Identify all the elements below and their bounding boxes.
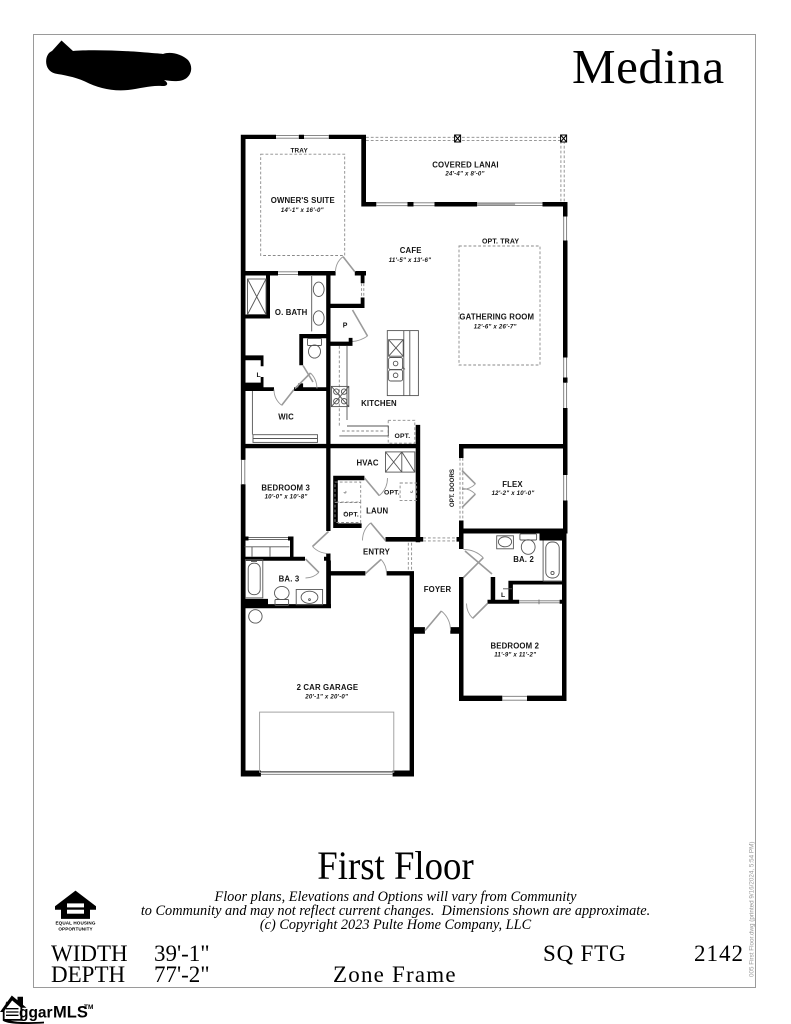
svg-text:FLEX: FLEX (502, 480, 523, 489)
svg-text:11'-9" x 11'-2": 11'-9" x 11'-2" (494, 651, 536, 658)
svg-text:12'-6" x 26'-7": 12'-6" x 26'-7" (474, 323, 517, 330)
svg-text:OPT. DOORS: OPT. DOORS (449, 469, 456, 507)
svg-text:OPT.: OPT. (384, 490, 400, 497)
svg-text:ggar: ggar (19, 1005, 53, 1022)
svg-text:005 First Floor.dwg (printed 9: 005 First Floor.dwg (printed 9/16/2024, … (749, 842, 756, 977)
svg-text:GATHERING ROOM: GATHERING ROOM (459, 313, 534, 322)
svg-text:OPT.: OPT. (343, 512, 359, 519)
svg-text:OPPORTUNITY: OPPORTUNITY (58, 927, 92, 932)
svg-text:BEDROOM 2: BEDROOM 2 (491, 641, 540, 650)
svg-text:11'-5" x 13'-6": 11'-5" x 13'-6" (389, 257, 431, 264)
svg-text:WIC: WIC (278, 413, 294, 422)
svg-text:20'-1" x 20'-0": 20'-1" x 20'-0" (304, 694, 348, 701)
svg-text:BEDROOM 3: BEDROOM 3 (261, 484, 310, 493)
svg-text:FOYER: FOYER (424, 585, 452, 594)
svg-text:MLS: MLS (53, 1004, 88, 1022)
svg-text:BA. 2: BA. 2 (513, 555, 534, 564)
svg-text:TM: TM (84, 1004, 93, 1011)
svg-text:CAFE: CAFE (400, 246, 422, 255)
svg-text:OPT. TRAY: OPT. TRAY (482, 239, 519, 246)
svg-text:14'-1" x 16'-0": 14'-1" x 16'-0" (281, 207, 324, 214)
svg-text:BA. 3: BA. 3 (279, 574, 300, 583)
svg-text:L: L (501, 592, 505, 599)
svg-text:OPT.: OPT. (395, 433, 411, 440)
svg-text:24'-4" x 8'-0": 24'-4" x 8'-0" (444, 170, 484, 177)
svg-text:10'-0" x 10'-8": 10'-0" x 10'-8" (265, 494, 308, 501)
svg-text:HVAC: HVAC (357, 458, 379, 467)
svg-text:L: L (256, 372, 260, 379)
svg-text:P: P (343, 323, 348, 330)
svg-text:TRAY: TRAY (290, 148, 308, 155)
svg-text:ENTRY: ENTRY (363, 547, 391, 556)
svg-text:COVERED LANAI: COVERED LANAI (432, 161, 499, 170)
svg-text:12'-2" x 10'-0": 12'-2" x 10'-0" (492, 490, 535, 497)
svg-text:EQUAL HOUSING: EQUAL HOUSING (55, 921, 95, 926)
svg-text:KITCHEN: KITCHEN (361, 399, 397, 408)
svg-text:O. BATH: O. BATH (275, 308, 308, 317)
svg-text:OWNER'S SUITE: OWNER'S SUITE (271, 196, 335, 205)
svg-text:2 CAR GARAGE: 2 CAR GARAGE (297, 683, 359, 692)
svg-text:LAUN: LAUN (366, 506, 388, 515)
